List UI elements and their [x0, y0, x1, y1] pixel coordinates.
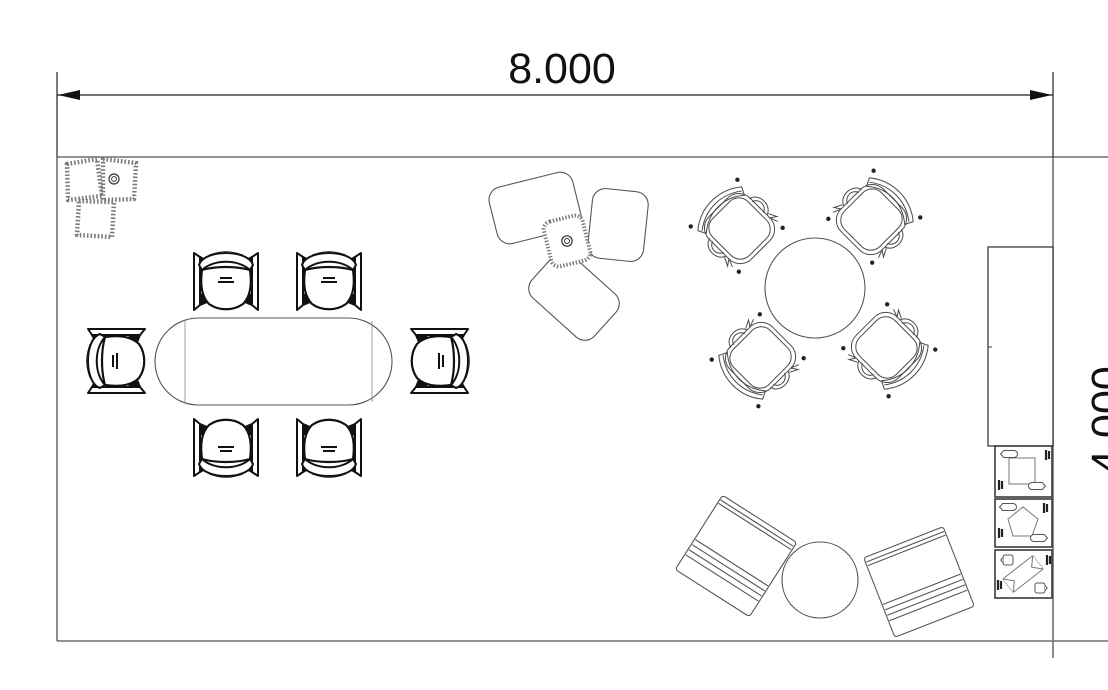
- cup-holder-inner-icon: [565, 239, 570, 244]
- conference-chair[interactable]: [297, 252, 361, 310]
- floor-plan-canvas: 8.000 4.000: [0, 0, 1108, 690]
- square-armchair[interactable]: [675, 495, 797, 617]
- lounge-corner-group[interactable]: [675, 495, 974, 637]
- cup-icon: [1035, 583, 1047, 593]
- conference-chair[interactable]: [194, 419, 258, 477]
- recycling-bin-3[interactable]: [995, 550, 1052, 598]
- pouf-seat[interactable]: [67, 159, 102, 200]
- cabinet[interactable]: [988, 247, 1053, 446]
- cup-holder-inner-icon: [112, 177, 117, 182]
- arrowhead-left-icon: [58, 90, 80, 100]
- square-armchair[interactable]: [864, 527, 975, 638]
- dimension-height[interactable]: 4.000: [1083, 366, 1108, 474]
- recycling-bin-2[interactable]: [995, 499, 1052, 547]
- pouf-seating-group[interactable]: [67, 159, 136, 237]
- pouf-seat[interactable]: [77, 201, 114, 237]
- floor-plan: 8.000 4.000: [0, 0, 1108, 690]
- conference-chair[interactable]: [194, 252, 258, 310]
- conference-table-group[interactable]: [87, 252, 470, 478]
- bottle-icon: [1000, 504, 1017, 511]
- dimension-width[interactable]: 8.000: [57, 45, 1053, 157]
- conference-chair[interactable]: [87, 329, 145, 393]
- lounge-group[interactable]: [486, 169, 649, 345]
- conference-chair[interactable]: [411, 329, 469, 393]
- round-table-group[interactable]: [686, 166, 940, 411]
- bottle-icon: [1001, 451, 1018, 458]
- lounge-seat[interactable]: [586, 187, 649, 262]
- conference-chair[interactable]: [297, 419, 361, 477]
- bottle-icon: [1029, 483, 1046, 490]
- cup-icon: [1001, 555, 1013, 565]
- bottle-icon: [1031, 535, 1048, 542]
- coffee-table[interactable]: [782, 542, 858, 618]
- arrowhead-right-icon: [1030, 90, 1052, 100]
- conference-table[interactable]: [155, 318, 392, 405]
- recycling-bin-1[interactable]: [995, 446, 1052, 497]
- round-table[interactable]: [765, 238, 865, 338]
- dimension-width-label: 8.000: [508, 45, 616, 93]
- dimension-height-label: 4.000: [1083, 366, 1108, 474]
